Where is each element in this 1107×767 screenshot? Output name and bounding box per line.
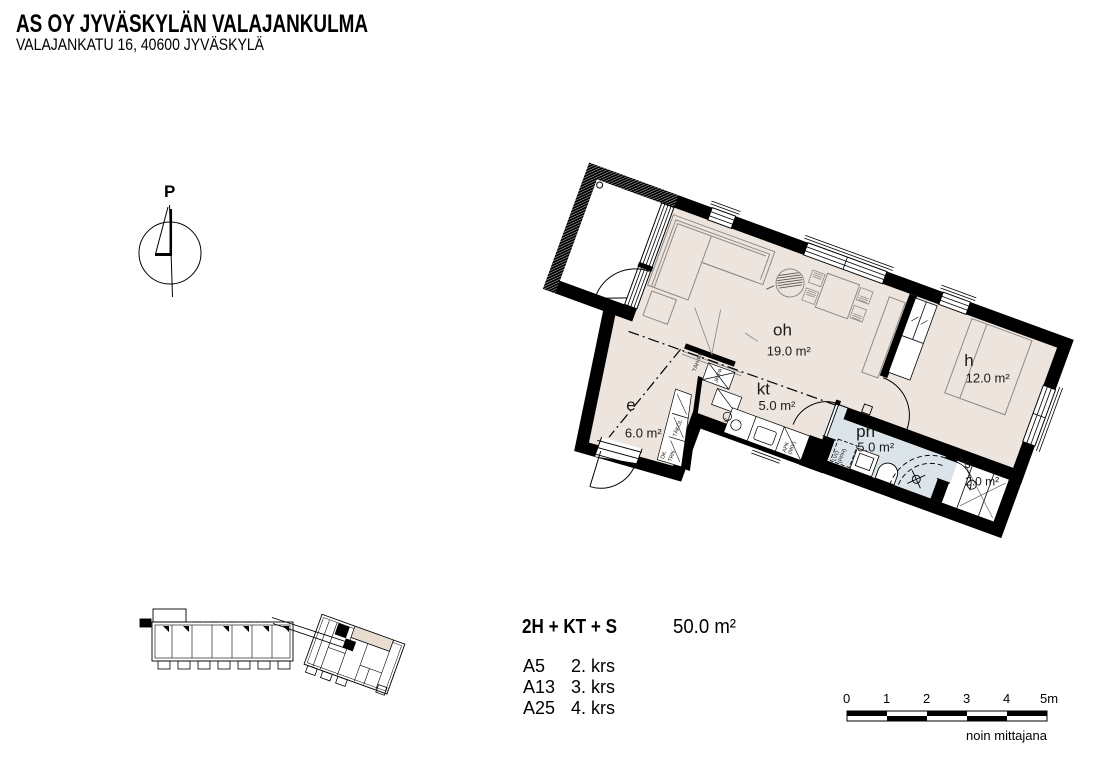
svg-text:6.0 m²: 6.0 m²: [625, 426, 663, 441]
svg-text:2H + KT + S: 2H + KT + S: [522, 616, 617, 638]
svg-text:3. krs: 3. krs: [571, 677, 615, 697]
svg-text:VALAJANKATU 16, 40600 JYVÄSKYL: VALAJANKATU 16, 40600 JYVÄSKYLÄ: [16, 35, 265, 54]
svg-text:s: s: [964, 456, 971, 471]
svg-text:12.0 m²: 12.0 m²: [966, 370, 1011, 385]
svg-text:kt: kt: [757, 379, 771, 398]
svg-text:5.0 m²: 5.0 m²: [857, 439, 895, 454]
svg-text:4. krs: 4. krs: [571, 698, 615, 718]
svg-text:ph: ph: [856, 422, 875, 441]
svg-text:A13: A13: [523, 677, 555, 697]
svg-text:3: 3: [963, 691, 970, 706]
svg-text:2.0 m²: 2.0 m²: [965, 474, 999, 488]
svg-text:2: 2: [923, 691, 930, 706]
svg-text:5.0 m²: 5.0 m²: [759, 398, 797, 413]
svg-text:5m: 5m: [1040, 691, 1058, 706]
svg-text:A25: A25: [523, 698, 555, 718]
svg-text:e: e: [626, 395, 635, 414]
svg-text:h: h: [964, 351, 973, 370]
svg-text:50.0 m²: 50.0 m²: [673, 616, 736, 638]
svg-text:4: 4: [1003, 691, 1010, 706]
svg-text:0: 0: [843, 691, 850, 706]
svg-text:1: 1: [883, 691, 890, 706]
svg-text:A5: A5: [523, 656, 545, 676]
svg-text:P: P: [164, 182, 175, 201]
svg-text:19.0 m²: 19.0 m²: [767, 343, 812, 358]
svg-text:oh: oh: [773, 320, 792, 339]
svg-text:AS OY JYVÄSKYLÄN VALAJANKULMA: AS OY JYVÄSKYLÄN VALAJANKULMA: [16, 10, 368, 38]
svg-text:noin mittajana: noin mittajana: [966, 728, 1048, 743]
svg-text:2. krs: 2. krs: [571, 656, 615, 676]
